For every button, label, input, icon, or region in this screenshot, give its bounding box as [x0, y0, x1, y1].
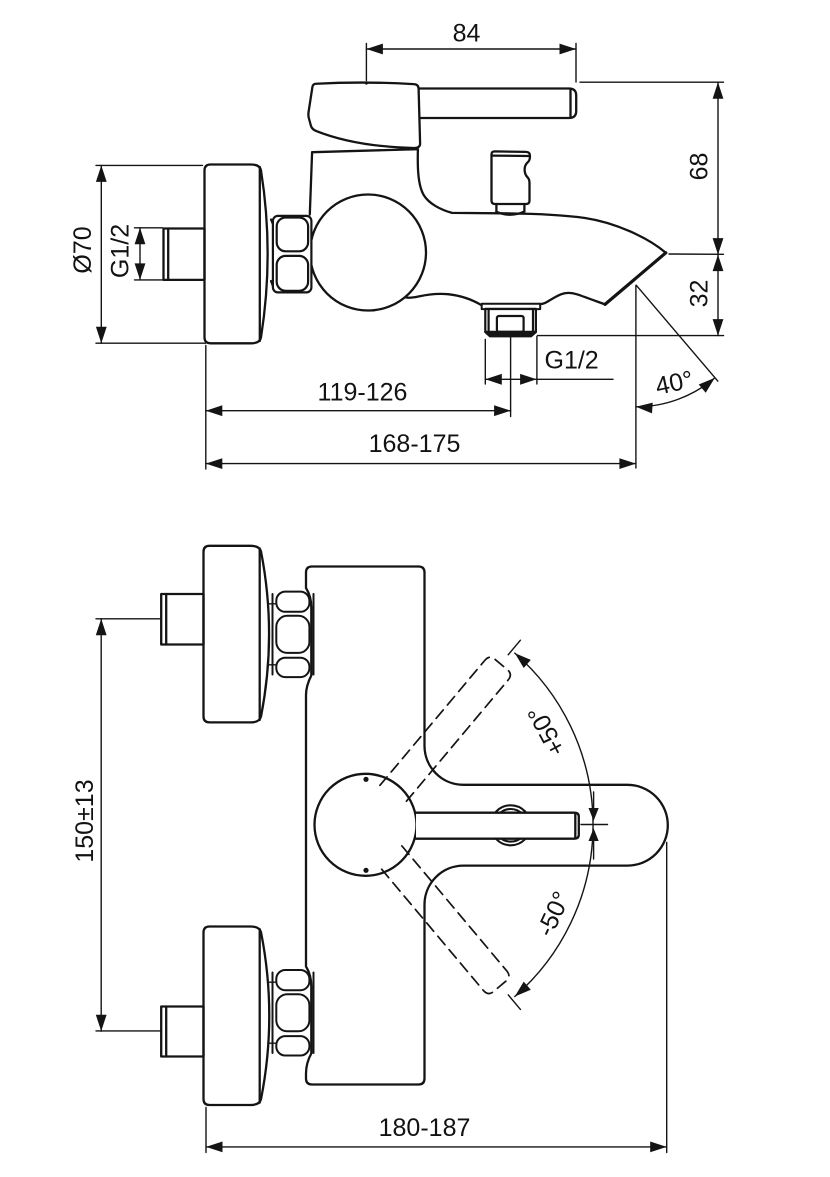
svg-text:+50°: +50° [522, 701, 571, 760]
svg-text:G1/2: G1/2 [545, 347, 599, 375]
svg-text:119-126: 119-126 [318, 379, 408, 407]
svg-text:168-175: 168-175 [369, 430, 461, 458]
svg-text:G1/2: G1/2 [107, 224, 135, 278]
svg-text:-50°: -50° [531, 887, 576, 941]
svg-text:32: 32 [686, 280, 714, 308]
svg-text:150±13: 150±13 [71, 779, 99, 862]
svg-text:84: 84 [453, 20, 481, 48]
svg-text:Ø70: Ø70 [69, 226, 97, 273]
svg-text:180-187: 180-187 [379, 1114, 471, 1142]
svg-text:68: 68 [686, 153, 714, 181]
